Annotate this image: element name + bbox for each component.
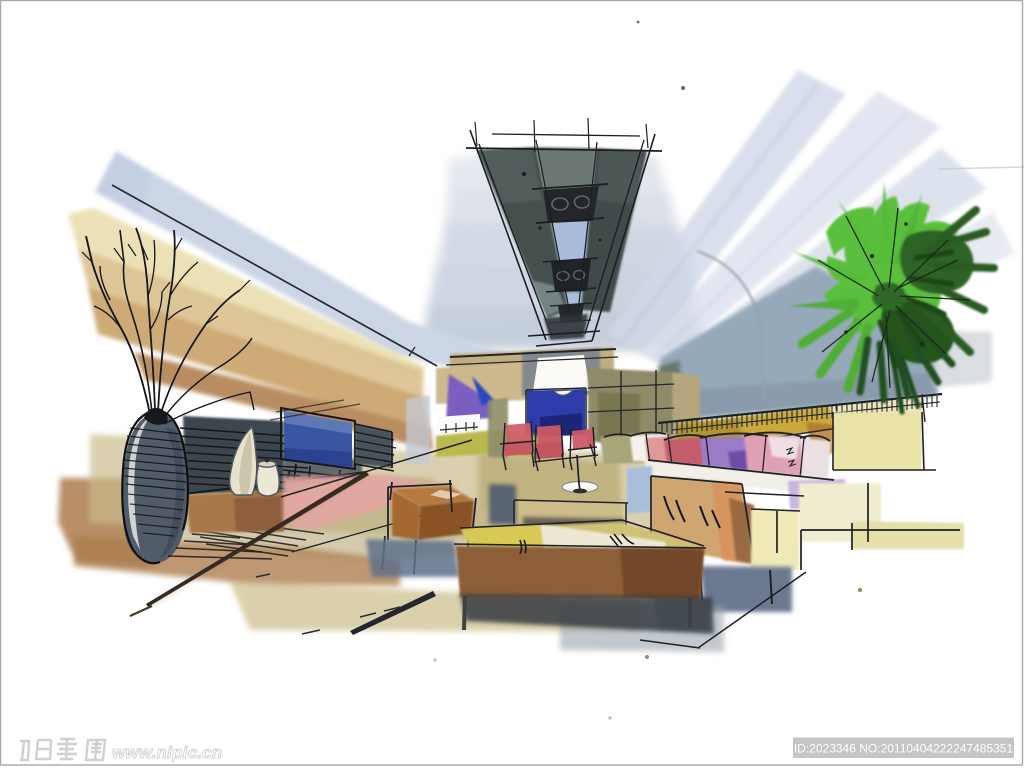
svg-text:ID:2023346 NO:2011040422224748: ID:2023346 NO:20110404222247485351 [794, 742, 1014, 756]
svg-text:www.nipic.cn: www.nipic.cn [112, 743, 222, 762]
